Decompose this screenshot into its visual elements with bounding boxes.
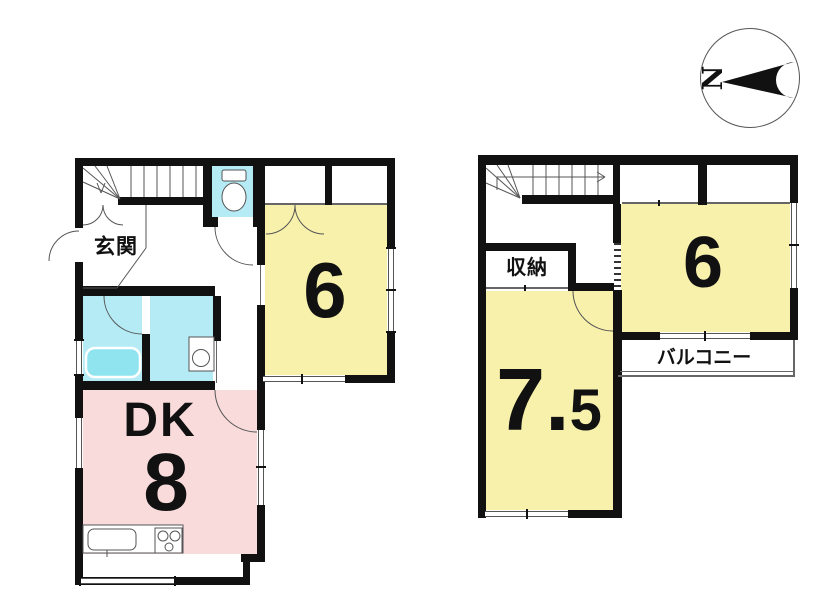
wall — [387, 158, 395, 248]
stairs-1f-icon — [83, 166, 196, 199]
window-tick — [386, 289, 396, 291]
window-tick — [74, 339, 84, 341]
wall — [75, 158, 83, 228]
window-tick — [79, 576, 81, 586]
entrance-door-arc — [49, 231, 79, 261]
window-tick — [386, 247, 396, 249]
closet-door-line — [707, 202, 790, 204]
wall — [205, 217, 218, 227]
wall — [325, 158, 332, 205]
stairs-direction-arrow — [497, 177, 605, 190]
wall — [75, 286, 215, 296]
floorplan-canvas: N — [0, 0, 840, 613]
genkan-label: 玄関 — [94, 237, 138, 258]
balcony-wall-inner — [620, 371, 793, 372]
wall — [613, 290, 622, 518]
wall — [478, 155, 486, 518]
wall — [142, 334, 150, 384]
wall — [568, 283, 618, 291]
wall — [257, 205, 265, 265]
closet-door-line — [622, 202, 698, 204]
balcony-label: バルコニー — [657, 349, 752, 368]
wall — [257, 383, 265, 430]
window-tick — [789, 244, 799, 246]
wall — [613, 332, 660, 340]
wall-under-stairs — [118, 197, 210, 205]
compass-north-label: N — [698, 58, 730, 98]
sliding-door-line — [260, 265, 261, 305]
room-bathroom-1f — [83, 296, 142, 381]
wall — [478, 155, 798, 165]
room6-2f-label: 6 — [683, 227, 723, 299]
shoe-closet-door-arc — [103, 205, 123, 225]
door-tick — [524, 285, 526, 291]
window-tick — [526, 509, 528, 519]
toilet-door-arc — [215, 227, 253, 265]
door-tick — [658, 200, 660, 206]
window-tick — [386, 331, 396, 333]
shoe-closet-door-arc — [83, 205, 103, 225]
room-toilet-1f — [212, 166, 253, 217]
window-tick — [704, 331, 706, 341]
window-tick — [74, 374, 84, 376]
window-tick — [256, 466, 266, 468]
balcony-wall — [618, 375, 795, 377]
wall — [75, 381, 215, 390]
window-tick — [174, 576, 176, 586]
window-tick — [301, 374, 303, 384]
sliding-door-line — [216, 341, 217, 383]
room6-1f-label: 6 — [303, 251, 346, 329]
wall — [345, 375, 395, 383]
wall — [790, 288, 798, 340]
room75-label: 7.5 — [496, 356, 602, 444]
balcony-wall — [793, 340, 795, 377]
wall — [613, 155, 620, 204]
wall — [257, 505, 265, 555]
wall — [75, 262, 83, 340]
closet-door-line — [332, 203, 387, 205]
folding-door-icon — [614, 243, 621, 290]
storage-label: 収納 — [506, 258, 548, 278]
window — [263, 376, 345, 382]
room-washroom-1f — [150, 296, 213, 381]
wall — [486, 243, 575, 251]
wall — [75, 158, 395, 166]
wall — [790, 155, 798, 203]
wall — [698, 165, 707, 205]
wall-under-stairs — [522, 195, 613, 204]
wall — [75, 468, 83, 585]
window — [76, 418, 82, 468]
window — [76, 340, 82, 375]
wall — [257, 305, 265, 375]
dk-area-label: 8 — [143, 442, 189, 524]
closet-door-line — [265, 203, 325, 205]
wall — [213, 296, 221, 341]
stairs-2f-icon — [486, 165, 605, 198]
window — [80, 578, 175, 584]
sliding-door-line — [486, 287, 568, 289]
wall — [613, 204, 621, 243]
